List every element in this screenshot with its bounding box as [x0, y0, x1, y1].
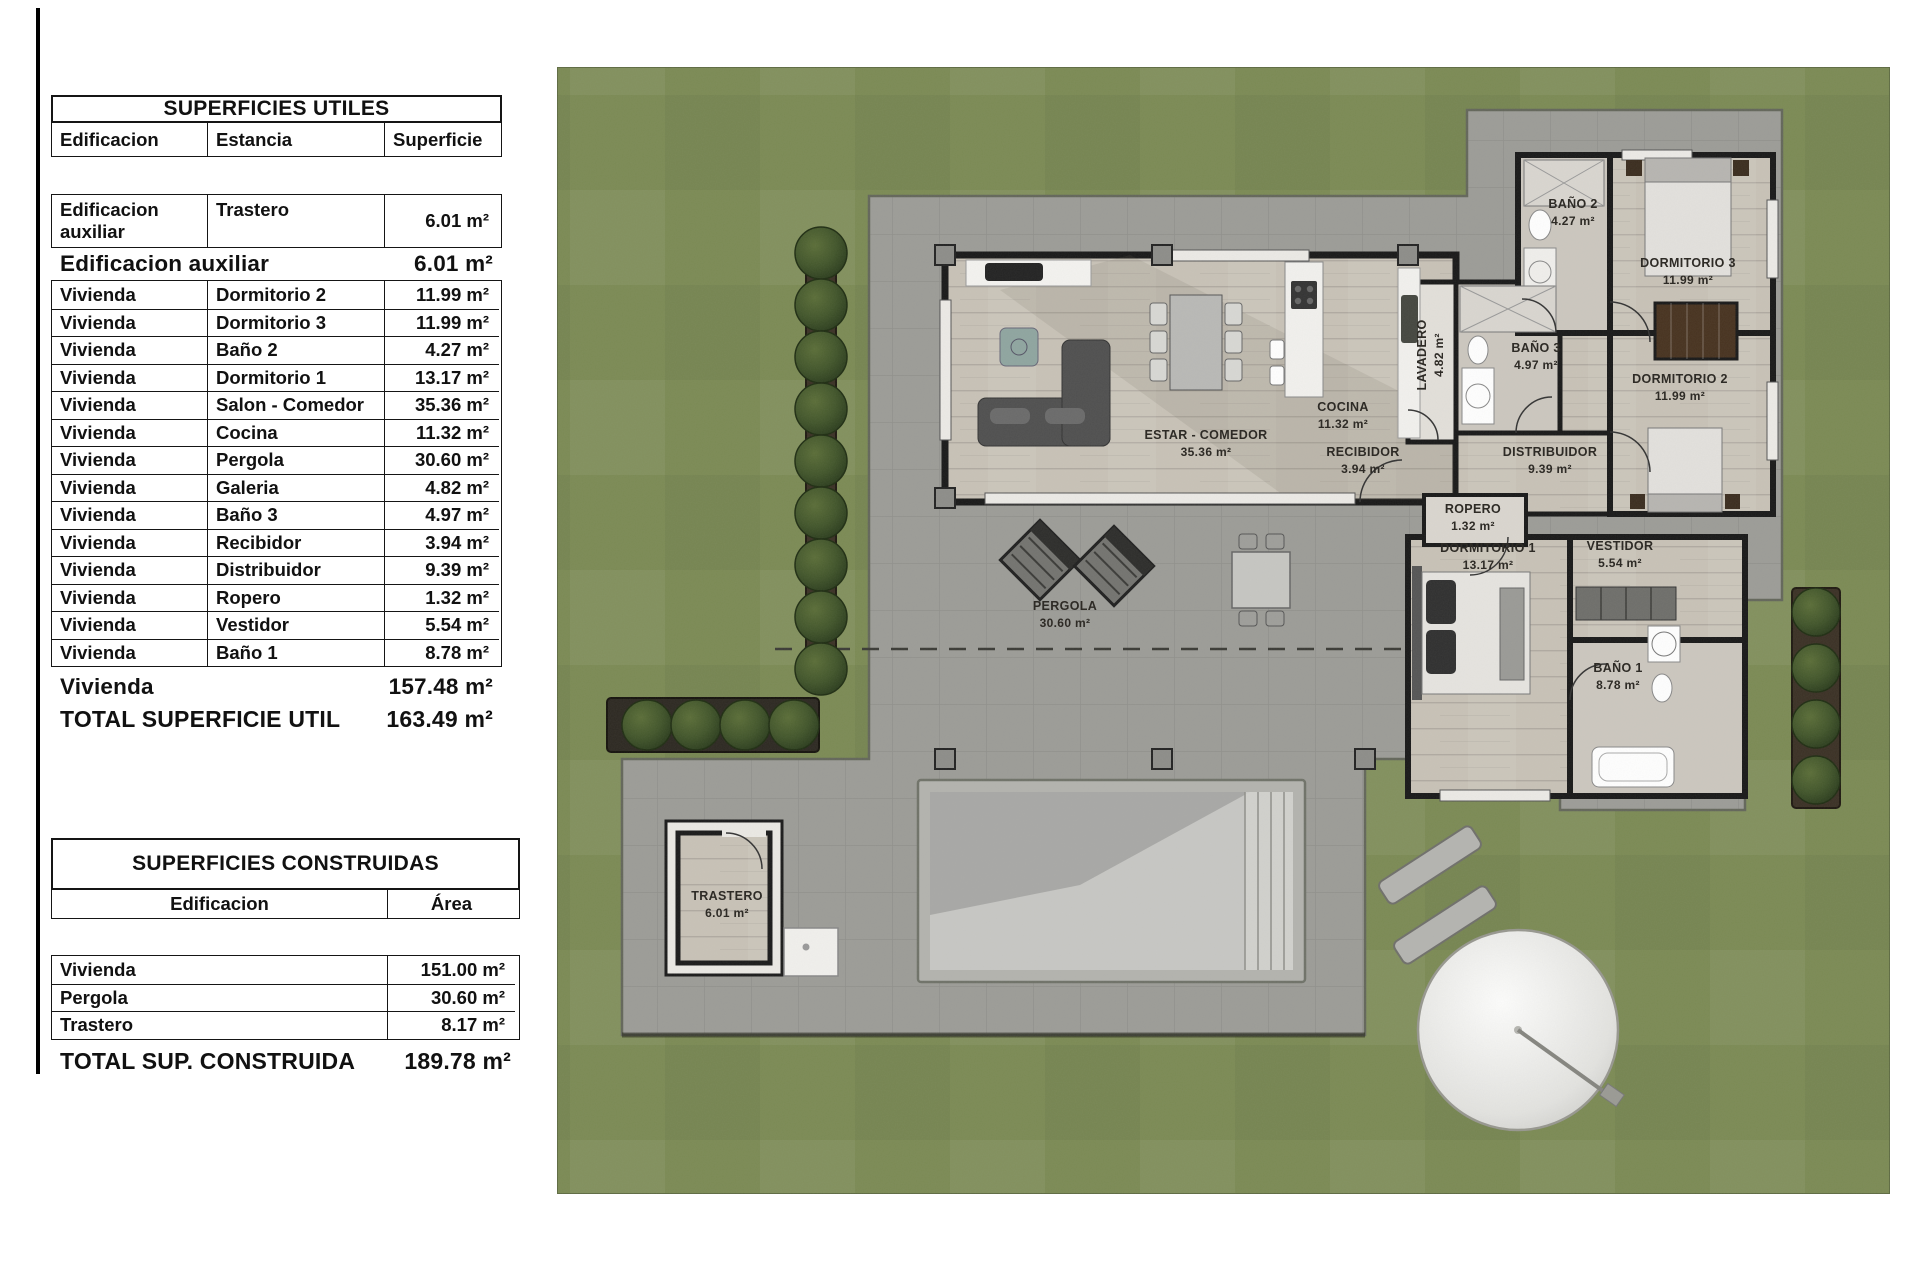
room-name: ESTAR - COMEDOR	[1144, 427, 1267, 444]
room-label-lavadero: LAVADERO 4.82 m²	[1414, 319, 1448, 390]
room-area: 1.32 m²	[1445, 518, 1501, 535]
room-label-bano3: BAÑO 3 4.97 m²	[1511, 340, 1560, 374]
room-area: 4.82 m²	[1431, 319, 1448, 390]
room-area: 11.32 m²	[1317, 416, 1368, 433]
room-name: TRASTERO	[691, 888, 763, 905]
room-label-cocina: COCINA 11.32 m²	[1317, 399, 1368, 433]
room-area: 11.99 m²	[1640, 272, 1736, 289]
room-label-dorm3: DORMITORIO 3 11.99 m²	[1640, 255, 1736, 289]
room-name: DISTRIBUIDOR	[1503, 444, 1597, 461]
room-name: RECIBIDOR	[1326, 444, 1399, 461]
room-label-ropero: ROPERO 1.32 m²	[1445, 501, 1501, 535]
room-name: LAVADERO	[1414, 319, 1431, 390]
room-label-dorm1: DORMITORIO 1 13.17 m²	[1440, 540, 1536, 574]
room-label-estar: ESTAR - COMEDOR 35.36 m²	[1144, 427, 1267, 461]
room-name: DORMITORIO 3	[1640, 255, 1736, 272]
room-name: PERGOLA	[1033, 598, 1097, 615]
room-area: 9.39 m²	[1503, 461, 1597, 478]
room-area: 13.17 m²	[1440, 557, 1536, 574]
room-area: 30.60 m²	[1033, 615, 1097, 632]
room-label-vestidor: VESTIDOR 5.54 m²	[1587, 538, 1654, 572]
room-area: 5.54 m²	[1587, 555, 1654, 572]
room-area: 4.27 m²	[1548, 213, 1597, 230]
room-label-trastero: TRASTERO 6.01 m²	[691, 888, 763, 922]
room-label-dorm2: DORMITORIO 2 11.99 m²	[1632, 371, 1728, 405]
room-area: 3.94 m²	[1326, 461, 1399, 478]
room-name: BAÑO 1	[1593, 660, 1642, 677]
room-name: BAÑO 2	[1548, 196, 1597, 213]
room-name: DORMITORIO 2	[1632, 371, 1728, 388]
room-label-bano1: BAÑO 1 8.78 m²	[1593, 660, 1642, 694]
room-area: 35.36 m²	[1144, 444, 1267, 461]
room-area: 6.01 m²	[691, 905, 763, 922]
room-name: BAÑO 3	[1511, 340, 1560, 357]
site-plan-drawing	[557, 67, 1890, 1194]
room-area: 8.78 m²	[1593, 677, 1642, 694]
site-plan: ESTAR - COMEDOR 35.36 m² COCINA 11.32 m²…	[0, 0, 1920, 1280]
room-area: 4.97 m²	[1511, 357, 1560, 374]
room-label-bano2: BAÑO 2 4.27 m²	[1548, 196, 1597, 230]
room-label-pergola: PERGOLA 30.60 m²	[1033, 598, 1097, 632]
room-name: VESTIDOR	[1587, 538, 1654, 555]
texture-overlay	[557, 67, 1890, 1194]
room-name: COCINA	[1317, 399, 1368, 416]
room-name: DORMITORIO 1	[1440, 540, 1536, 557]
room-name: ROPERO	[1445, 501, 1501, 518]
room-area: 11.99 m²	[1632, 388, 1728, 405]
room-label-distribuidor: DISTRIBUIDOR 9.39 m²	[1503, 444, 1597, 478]
room-label-recibidor: RECIBIDOR 3.94 m²	[1326, 444, 1399, 478]
